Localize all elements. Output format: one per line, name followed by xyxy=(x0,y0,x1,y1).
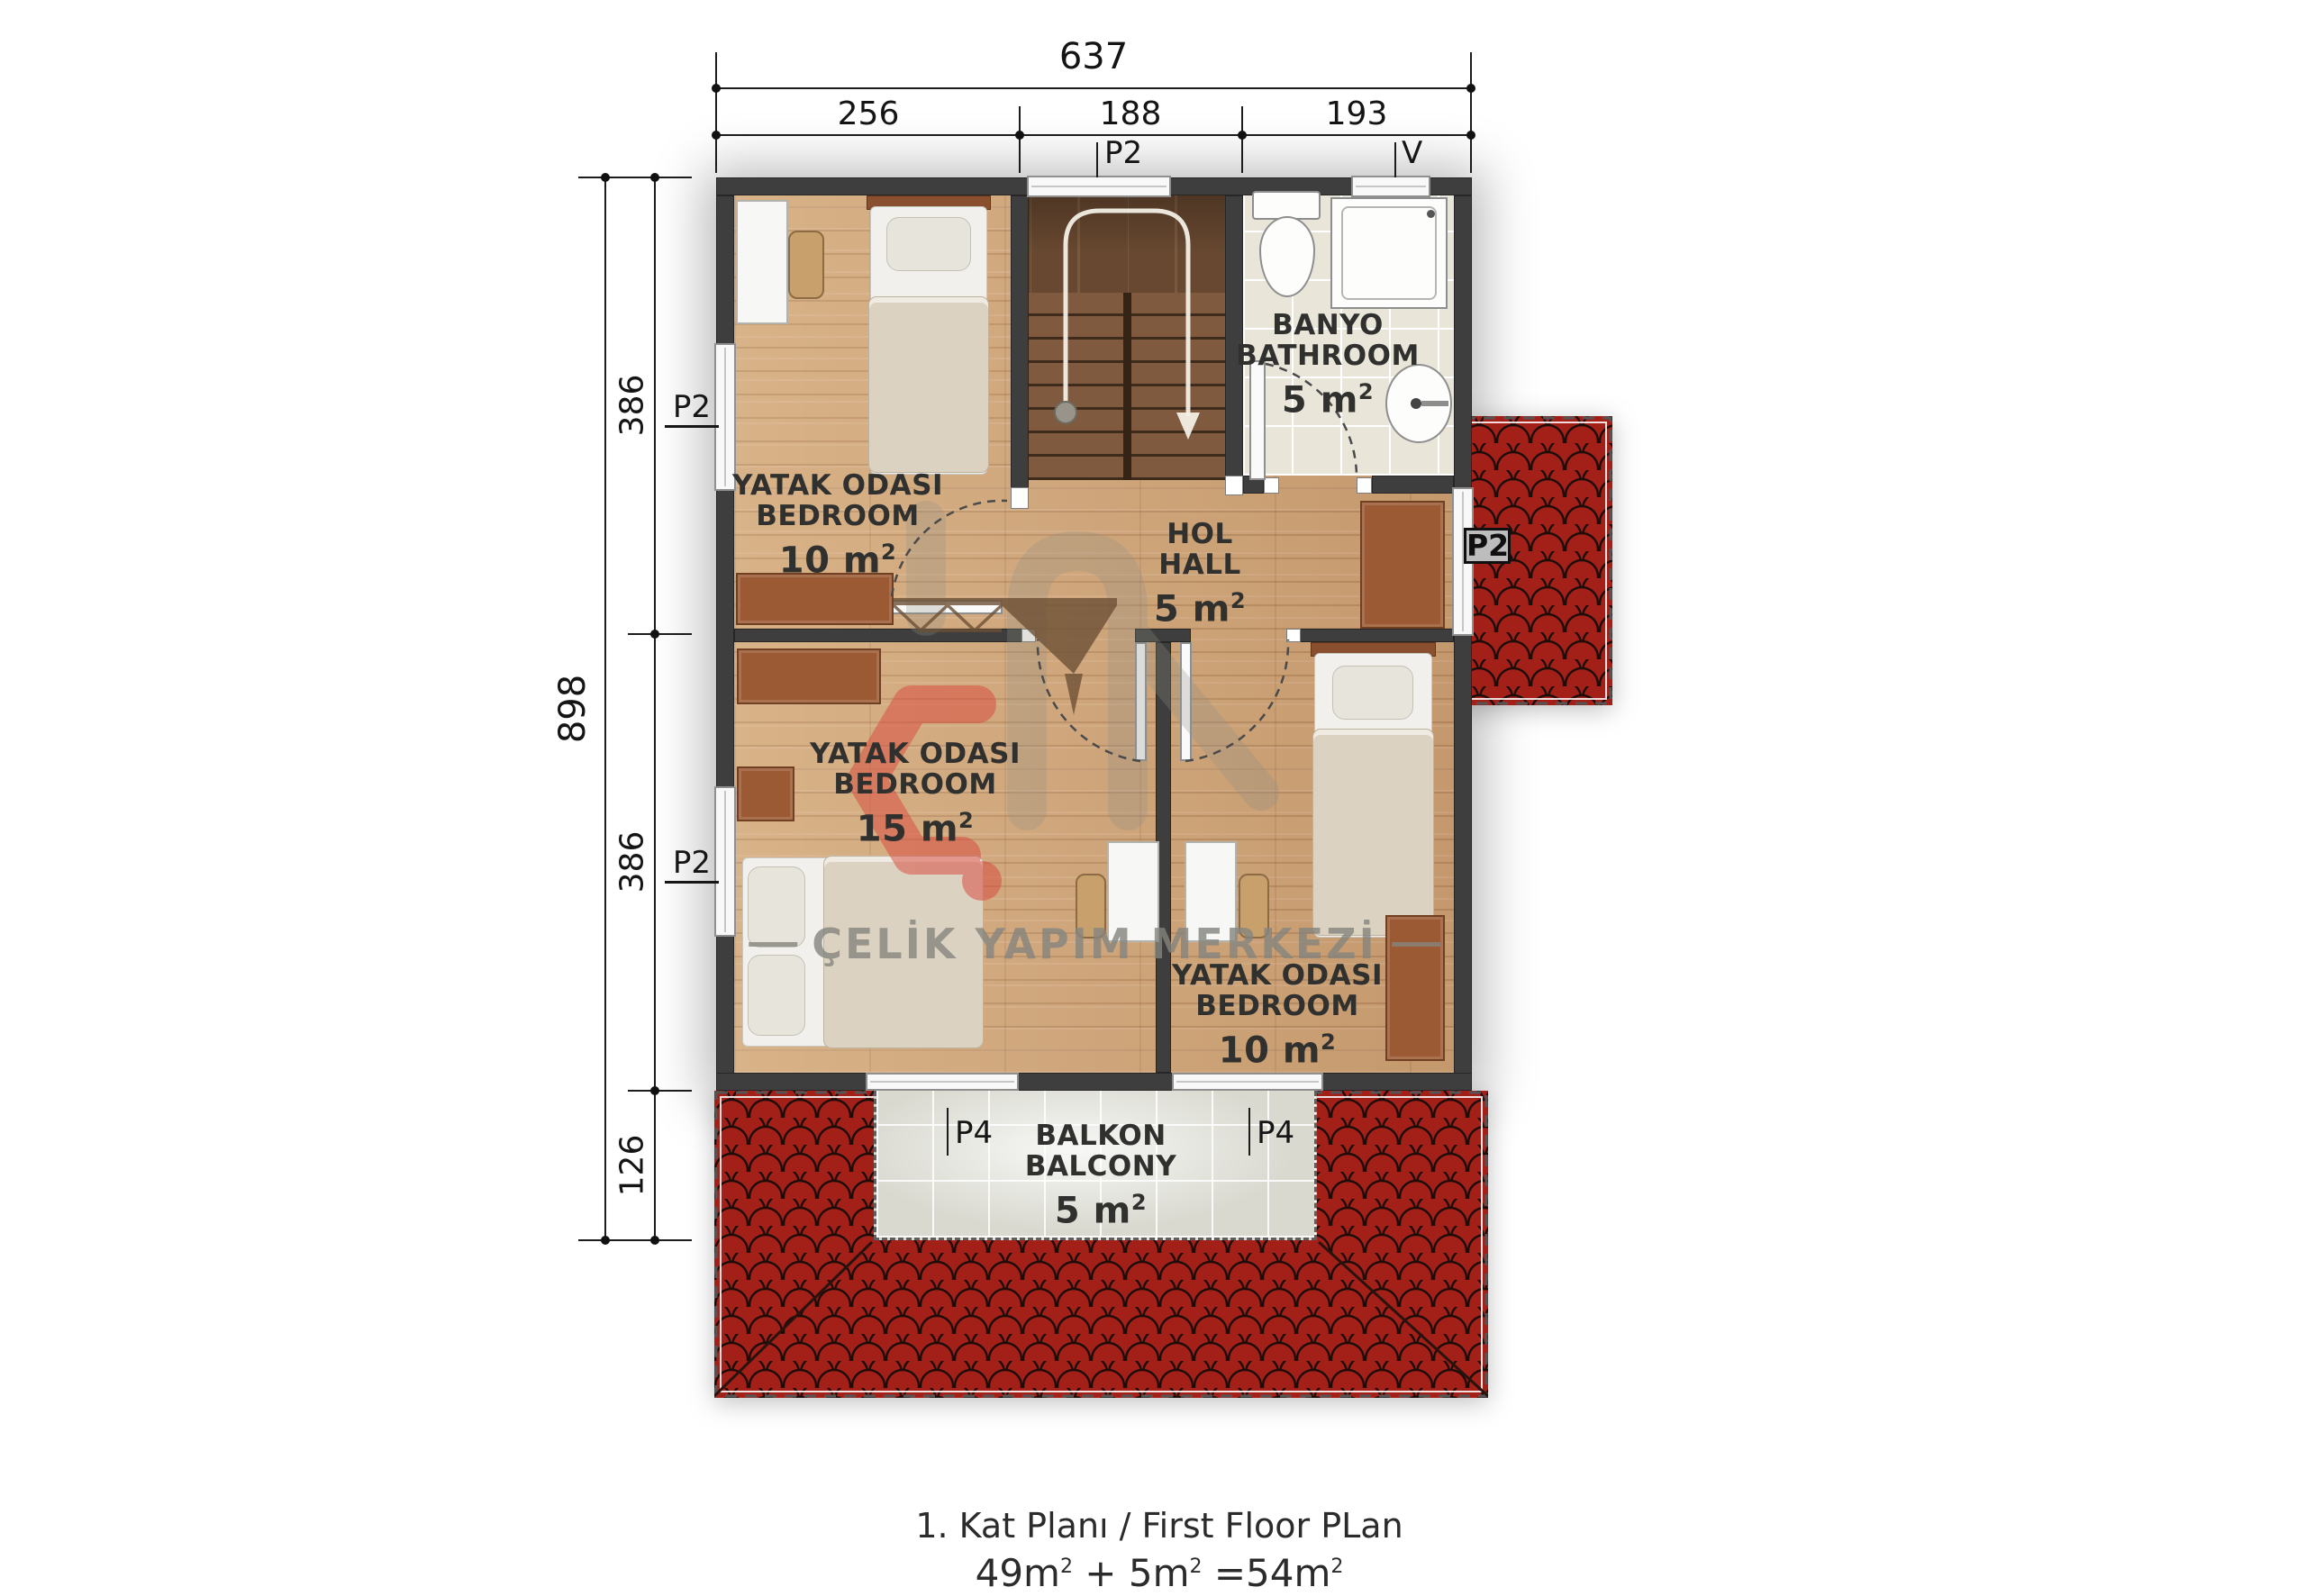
label-p4-left: P4 xyxy=(955,1115,993,1151)
dim-left-seg3: 126 xyxy=(614,1135,651,1197)
label-p2-top: P2 xyxy=(1104,135,1142,171)
room-name-en: BEDROOM xyxy=(1172,991,1383,1021)
room-label-bathroom: BANYO BATHROOM 5 m2 xyxy=(1236,310,1420,421)
room-label-bedroom-mid: YATAK ODASI BEDROOM 15 m2 xyxy=(810,739,1021,849)
watermark-dash-right xyxy=(1392,942,1440,947)
room-name-en: BALCONY xyxy=(1025,1151,1176,1182)
room-area: 5 m2 xyxy=(1154,580,1246,630)
room-name-tr: HOL xyxy=(1154,519,1246,549)
label-p4-right: P4 xyxy=(1257,1115,1294,1151)
label-p2-roof: P2 xyxy=(1464,528,1511,564)
watermark-dash-left xyxy=(749,942,797,947)
area-equation: 49m2 + 5m2 =54m2 xyxy=(976,1551,1344,1595)
room-name-en: BATHROOM xyxy=(1236,340,1420,371)
room-name-en: BEDROOM xyxy=(810,769,1021,800)
room-name-tr: BALKON xyxy=(1025,1120,1176,1151)
watermark-text: ÇELİK YAPIM MERKEZİ xyxy=(812,920,1377,968)
room-area: 10 m2 xyxy=(1172,1021,1383,1071)
room-name-tr: BANYO xyxy=(1236,310,1420,340)
room-area: 15 m2 xyxy=(810,800,1021,849)
plan-overlay xyxy=(0,0,2306,1596)
room-area: 10 m2 xyxy=(732,531,943,581)
dim-top-seg2: 188 xyxy=(1100,95,1162,132)
dim-left-seg1: 386 xyxy=(614,375,651,437)
label-p2-left-lower: P2 xyxy=(665,845,719,884)
dim-top-seg3: 193 xyxy=(1326,95,1388,132)
room-name-en: HALL xyxy=(1154,549,1246,580)
room-label-bedroom-r: YATAK ODASI BEDROOM 10 m2 xyxy=(1172,960,1383,1071)
room-label-bedroom-tl: YATAK ODASI BEDROOM 10 m2 xyxy=(732,470,943,581)
label-p2-left-upper: P2 xyxy=(665,389,719,428)
brand-watermark: ÇELİK YAPIM MERKEZİ xyxy=(749,920,1440,968)
label-v-top: V xyxy=(1402,135,1422,171)
room-name-tr: YATAK ODASI xyxy=(732,470,943,501)
dim-left-seg2: 386 xyxy=(614,831,651,893)
floor-plan-page: 637 256 188 193 898 386 386 126 P2 V P2 … xyxy=(0,0,2306,1596)
stair-arrow xyxy=(1055,211,1200,440)
room-name-en: BEDROOM xyxy=(732,501,943,531)
dim-top-seg1: 256 xyxy=(838,95,900,132)
room-label-hall: HOL HALL 5 m2 xyxy=(1154,519,1246,630)
room-area: 5 m2 xyxy=(1236,371,1420,421)
room-label-balcony: BALKON BALCONY 5 m2 xyxy=(1025,1120,1176,1231)
plan-title: 1. Kat Planı / First Floor PLan xyxy=(915,1506,1403,1546)
dim-total-height: 898 xyxy=(552,675,594,743)
room-area: 5 m2 xyxy=(1025,1182,1176,1231)
room-name-tr: YATAK ODASI xyxy=(810,739,1021,769)
dim-total-width: 637 xyxy=(1059,36,1128,77)
